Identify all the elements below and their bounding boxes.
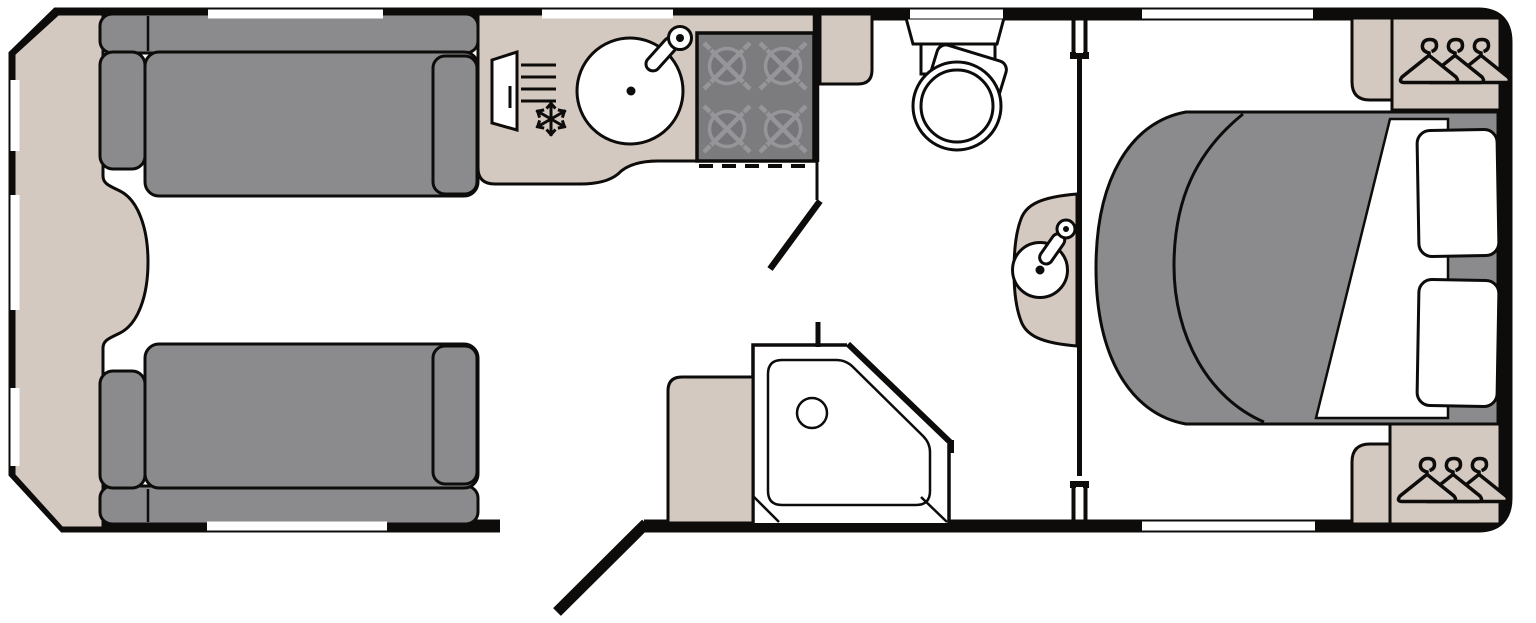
- window-bottom-lounge: [207, 522, 387, 531]
- window-front-1: [11, 80, 20, 151]
- washbasin: [1013, 194, 1078, 346]
- sofa-bottom: [100, 344, 478, 524]
- floorplan-canvas: [0, 0, 1536, 623]
- bedside-unit-bottom: [1352, 444, 1390, 524]
- window-front-2: [11, 195, 20, 310]
- island-bed: [1096, 112, 1499, 424]
- bedside-unit-top: [1352, 18, 1392, 100]
- door-jamb-bottom: [1070, 481, 1089, 488]
- sofa-top-back: [100, 14, 478, 53]
- window-front-3: [11, 388, 20, 466]
- wardrobe-top: [1392, 18, 1510, 110]
- door-jamb-top: [1070, 52, 1089, 59]
- sofa-bottom-seat: [145, 344, 478, 488]
- sofa-top-armrest-left: [100, 52, 145, 169]
- washroom-cabinet-bottom: [668, 377, 753, 523]
- caravan-floorplan: [0, 0, 1536, 623]
- sofa-bottom-back: [100, 486, 478, 524]
- entrance-door-leaf: [557, 524, 646, 613]
- sofa-bottom-armrest-right: [433, 346, 477, 484]
- area-kitchen: [478, 14, 816, 184]
- toilet: [906, 18, 1009, 150]
- wardrobe-bottom: [1390, 424, 1508, 524]
- window-top-lounge: [208, 10, 383, 19]
- sofa-top-seat: [145, 52, 478, 196]
- pillow: [1417, 279, 1499, 406]
- window-bottom-bedroom: [1142, 522, 1315, 531]
- hob-4-burner: [697, 33, 814, 166]
- sofa-bottom-armrest-left: [100, 371, 145, 488]
- sofa-top: [100, 14, 478, 196]
- window-top-washroom: [910, 10, 1003, 19]
- entrance-door: [500, 518, 646, 613]
- window-top-bedroom: [1142, 10, 1313, 19]
- washroom-cabinet-top: [820, 14, 872, 84]
- pillow: [1417, 129, 1499, 256]
- sofa-top-armrest-right: [433, 56, 477, 194]
- entrance-door-opening: [500, 518, 644, 535]
- window-top-kitchen: [542, 10, 673, 19]
